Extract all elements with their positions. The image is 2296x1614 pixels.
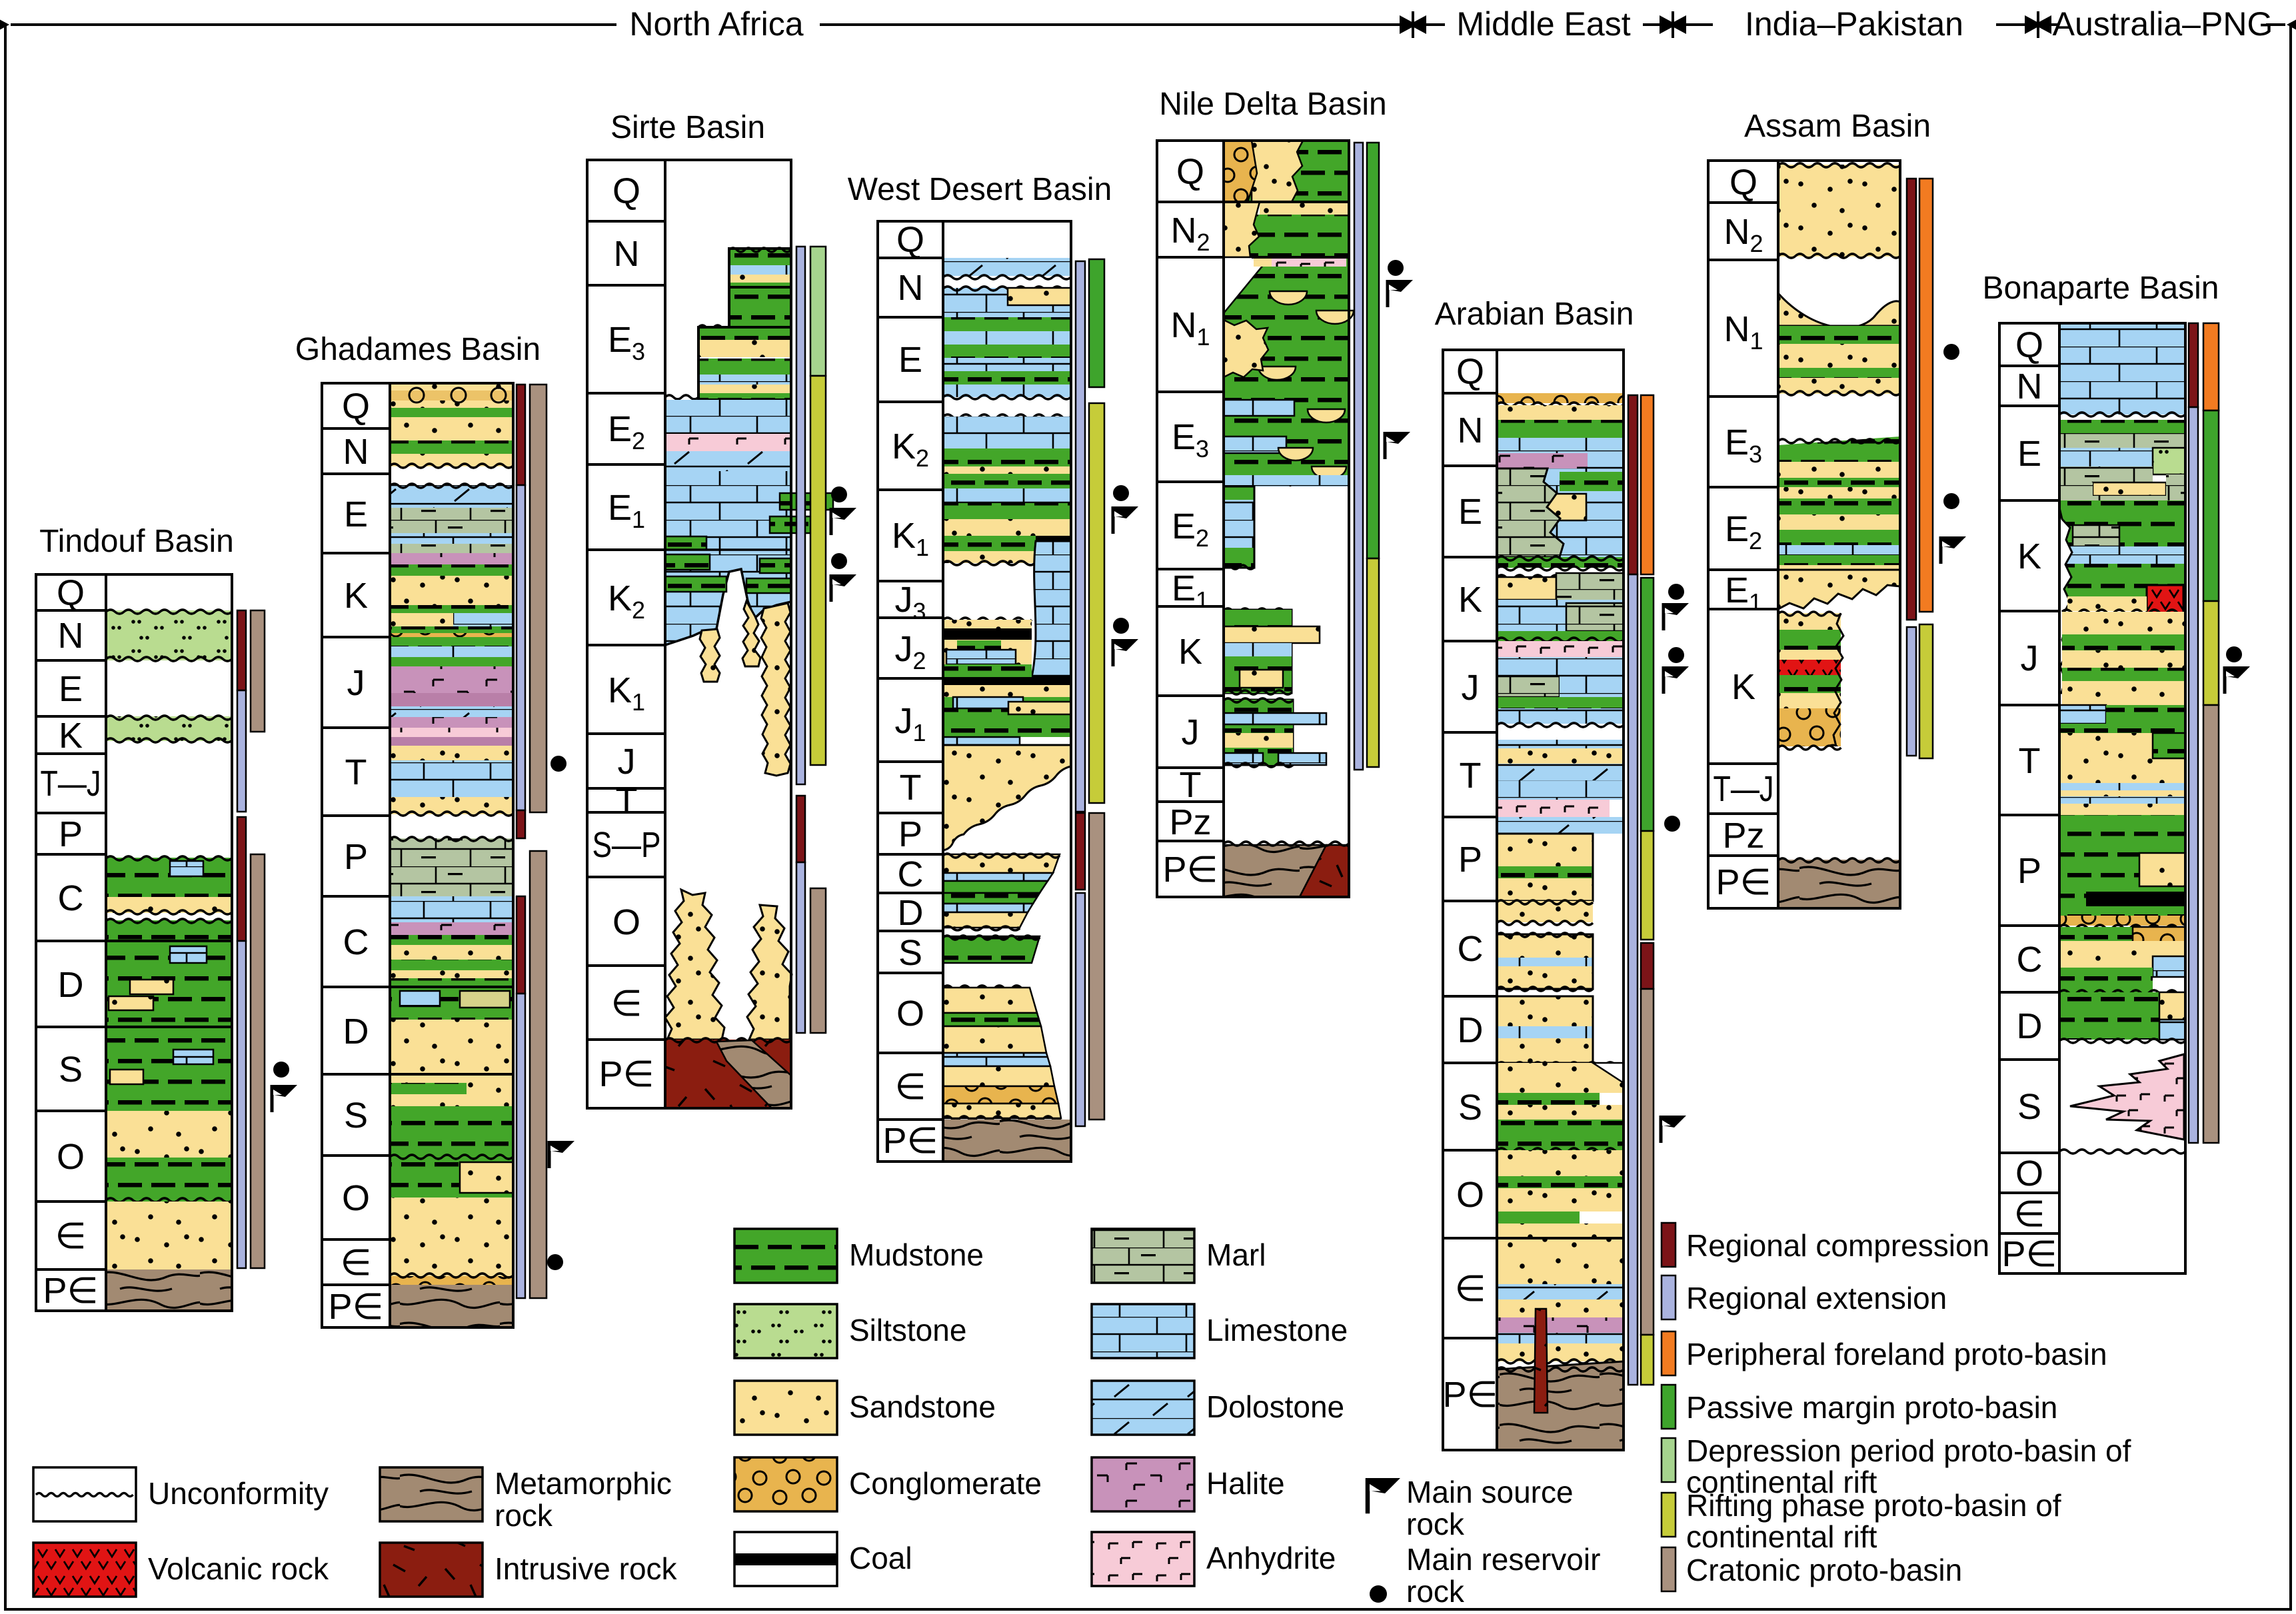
- svg-text:C: C: [1458, 929, 1484, 969]
- svg-text:D: D: [1458, 1010, 1484, 1050]
- svg-text:rock: rock: [1406, 1574, 1465, 1609]
- svg-text:E: E: [2017, 434, 2041, 474]
- svg-text:Nile Delta Basin: Nile Delta Basin: [1159, 87, 1386, 122]
- svg-text:P: P: [2017, 851, 2041, 891]
- svg-text:T—J: T—J: [41, 764, 101, 804]
- svg-text:K: K: [2017, 536, 2041, 576]
- svg-text:Q: Q: [896, 220, 924, 260]
- svg-text:Ghadames Basin: Ghadames Basin: [295, 332, 541, 367]
- svg-text:Sirte Basin: Sirte Basin: [610, 110, 765, 145]
- svg-text:P: P: [898, 814, 922, 854]
- svg-text:S: S: [59, 1050, 83, 1090]
- svg-text:Dolostone: Dolostone: [1206, 1389, 1344, 1424]
- svg-text:P∈: P∈: [328, 1287, 383, 1327]
- svg-text:Main source: Main source: [1406, 1475, 1574, 1509]
- svg-text:P∈: P∈: [1442, 1375, 1498, 1415]
- svg-text:Q: Q: [2015, 325, 2043, 365]
- svg-text:India–Pakistan: India–Pakistan: [1745, 5, 1963, 43]
- svg-text:C: C: [2017, 940, 2043, 980]
- svg-text:N: N: [343, 432, 369, 472]
- svg-text:T: T: [900, 768, 922, 808]
- svg-text:J: J: [1182, 712, 1200, 752]
- svg-text:Q: Q: [1176, 152, 1204, 192]
- svg-text:Main reservoir: Main reservoir: [1406, 1542, 1600, 1577]
- svg-text:P∈: P∈: [1716, 862, 1771, 902]
- svg-text:S: S: [898, 933, 922, 973]
- svg-text:Mudstone: Mudstone: [849, 1237, 984, 1272]
- svg-text:Q: Q: [1729, 163, 1757, 203]
- svg-text:Q: Q: [57, 573, 85, 613]
- svg-text:T: T: [345, 752, 367, 792]
- svg-text:K: K: [59, 716, 83, 756]
- svg-text:O: O: [1456, 1175, 1484, 1215]
- svg-text:O: O: [896, 994, 924, 1034]
- svg-text:S—P: S—P: [592, 825, 661, 865]
- svg-text:P∈: P∈: [598, 1054, 654, 1094]
- svg-text:T: T: [1460, 756, 1482, 796]
- svg-text:Arabian Basin: Arabian Basin: [1435, 297, 1634, 332]
- svg-text:Pz: Pz: [1722, 816, 1764, 856]
- svg-text:E: E: [59, 669, 83, 709]
- svg-text:D: D: [2017, 1006, 2043, 1046]
- svg-text:West Desert Basin: West Desert Basin: [848, 172, 1112, 207]
- svg-text:J: J: [347, 663, 365, 703]
- svg-text:Pz: Pz: [1169, 802, 1211, 842]
- svg-text:Limestone: Limestone: [1206, 1313, 1348, 1347]
- svg-text:P: P: [59, 814, 83, 854]
- svg-text:Halite: Halite: [1206, 1466, 1285, 1501]
- svg-text:O: O: [612, 902, 640, 942]
- svg-text:C: C: [898, 854, 924, 894]
- svg-text:∈: ∈: [610, 984, 642, 1024]
- svg-text:D: D: [343, 1012, 369, 1052]
- svg-text:Intrusive rock: Intrusive rock: [495, 1551, 678, 1586]
- svg-text:T: T: [2019, 741, 2041, 781]
- svg-text:North Africa: North Africa: [629, 5, 803, 43]
- svg-text:J: J: [2021, 638, 2039, 678]
- svg-text:rock: rock: [495, 1498, 553, 1533]
- svg-text:D: D: [58, 965, 84, 1005]
- svg-text:rock: rock: [1406, 1507, 1465, 1541]
- svg-text:P∈: P∈: [1162, 850, 1218, 890]
- svg-text:Coal: Coal: [849, 1541, 912, 1575]
- svg-text:N: N: [1458, 410, 1484, 450]
- svg-text:continental rift: continental rift: [1686, 1519, 1877, 1554]
- svg-text:N: N: [898, 268, 924, 308]
- svg-text:C: C: [58, 878, 84, 918]
- svg-text:P∈: P∈: [882, 1121, 938, 1161]
- svg-text:Q: Q: [1456, 352, 1484, 392]
- svg-text:J: J: [618, 742, 636, 782]
- svg-text:Passive margin proto-basin: Passive margin proto-basin: [1686, 1390, 2057, 1425]
- svg-text:Regional compression: Regional compression: [1686, 1228, 1989, 1263]
- svg-text:E: E: [344, 494, 368, 534]
- svg-text:T: T: [1180, 765, 1202, 805]
- svg-text:N: N: [614, 234, 640, 274]
- svg-text:P∈: P∈: [43, 1271, 98, 1311]
- svg-text:Rifting phase proto-basin of: Rifting phase proto-basin of: [1686, 1488, 2061, 1523]
- svg-text:Volcanic rock: Volcanic rock: [148, 1551, 329, 1586]
- svg-text:Unconformity: Unconformity: [148, 1476, 329, 1511]
- svg-text:Peripheral foreland proto-basi: Peripheral foreland proto-basin: [1686, 1337, 2107, 1371]
- svg-text:P∈: P∈: [2001, 1234, 2057, 1274]
- svg-text:Siltstone: Siltstone: [849, 1313, 966, 1347]
- svg-text:∈: ∈: [55, 1216, 86, 1256]
- svg-text:S: S: [2017, 1087, 2041, 1127]
- svg-text:Q: Q: [612, 171, 640, 211]
- svg-text:Regional extension: Regional extension: [1686, 1281, 1947, 1315]
- svg-text:D: D: [898, 893, 924, 933]
- svg-text:Sandstone: Sandstone: [849, 1389, 996, 1424]
- svg-text:C: C: [343, 922, 369, 962]
- svg-text:J: J: [1462, 668, 1480, 708]
- svg-text:Bonaparte Basin: Bonaparte Basin: [1983, 271, 2219, 306]
- svg-text:∈: ∈: [1454, 1269, 1486, 1309]
- svg-text:K: K: [1731, 667, 1755, 707]
- svg-text:O: O: [57, 1137, 85, 1177]
- svg-text:E: E: [1458, 492, 1482, 532]
- svg-text:Middle East: Middle East: [1456, 5, 1630, 43]
- svg-text:O: O: [342, 1178, 370, 1218]
- svg-text:Q: Q: [342, 387, 370, 426]
- svg-text:K: K: [1458, 580, 1482, 620]
- svg-text:∈: ∈: [894, 1067, 926, 1107]
- svg-text:∈: ∈: [340, 1243, 371, 1283]
- svg-text:Marl: Marl: [1206, 1237, 1266, 1272]
- svg-text:Cratonic proto-basin: Cratonic proto-basin: [1686, 1553, 1962, 1587]
- svg-text:N: N: [58, 616, 84, 656]
- svg-text:O: O: [2015, 1154, 2043, 1194]
- svg-text:K: K: [344, 576, 368, 616]
- svg-text:S: S: [344, 1096, 368, 1136]
- svg-text:Metamorphic: Metamorphic: [495, 1466, 672, 1501]
- svg-text:P: P: [344, 837, 368, 877]
- svg-text:∈: ∈: [2013, 1194, 2045, 1234]
- svg-text:E: E: [898, 340, 922, 380]
- svg-text:Australia–PNG: Australia–PNG: [2053, 5, 2273, 43]
- svg-text:K: K: [1178, 632, 1202, 672]
- svg-text:Assam Basin: Assam Basin: [1744, 109, 1931, 144]
- svg-text:Tindouf Basin: Tindouf Basin: [39, 524, 234, 559]
- svg-text:Depression period proto-basin: Depression period proto-basin of: [1686, 1433, 2131, 1468]
- svg-text:T—J: T—J: [1714, 769, 1774, 809]
- svg-text:Conglomerate: Conglomerate: [849, 1466, 1042, 1501]
- svg-text:N: N: [2017, 367, 2043, 406]
- svg-text:P: P: [1458, 840, 1482, 880]
- svg-text:Anhydrite: Anhydrite: [1206, 1541, 1336, 1575]
- svg-text:S: S: [1458, 1088, 1482, 1128]
